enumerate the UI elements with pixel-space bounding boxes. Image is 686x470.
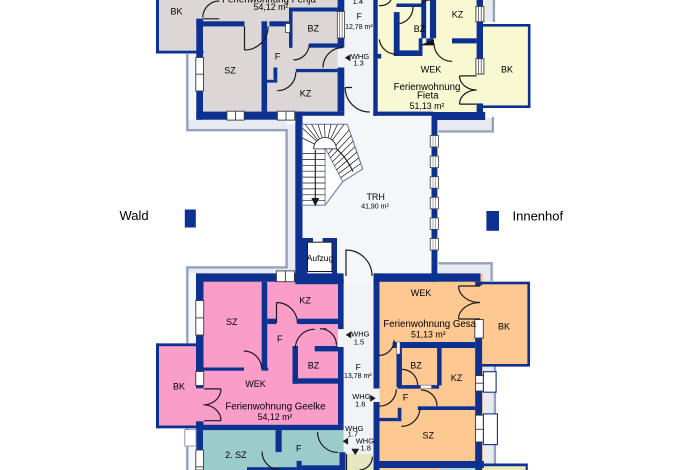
svg-text:1.3: 1.3 bbox=[353, 59, 363, 68]
svg-text:Innenhof: Innenhof bbox=[513, 208, 564, 223]
svg-text:54,12 m²: 54,12 m² bbox=[254, 2, 289, 12]
svg-text:F: F bbox=[277, 334, 283, 344]
svg-text:BZ: BZ bbox=[308, 24, 320, 34]
svg-text:KZ: KZ bbox=[300, 89, 312, 99]
svg-text:KZ: KZ bbox=[299, 295, 311, 305]
svg-text:SZ: SZ bbox=[423, 431, 435, 441]
svg-text:F: F bbox=[275, 52, 281, 62]
svg-text:BK: BK bbox=[498, 321, 510, 331]
svg-text:1.4: 1.4 bbox=[353, 0, 363, 6]
svg-text:BK: BK bbox=[170, 7, 182, 17]
svg-text:KZ: KZ bbox=[451, 373, 463, 383]
svg-text:KZ: KZ bbox=[452, 10, 464, 20]
svg-text:BK: BK bbox=[501, 65, 513, 75]
svg-text:SZ: SZ bbox=[226, 317, 238, 327]
svg-text:BK: BK bbox=[173, 381, 185, 391]
svg-text:12,78 m²: 12,78 m² bbox=[345, 24, 373, 31]
svg-text:Ferienwohnung Gesa: Ferienwohnung Gesa bbox=[383, 319, 476, 330]
svg-text:F: F bbox=[356, 362, 361, 372]
svg-text:WEK: WEK bbox=[411, 288, 432, 298]
svg-text:41,90 m²: 41,90 m² bbox=[361, 204, 389, 211]
svg-text:BZ: BZ bbox=[308, 361, 320, 371]
svg-text:13,78 m²: 13,78 m² bbox=[344, 373, 372, 380]
svg-text:1.5: 1.5 bbox=[354, 338, 364, 347]
svg-text:1.6: 1.6 bbox=[355, 399, 365, 408]
svg-text:SZ: SZ bbox=[224, 66, 236, 76]
svg-text:TRH: TRH bbox=[366, 192, 385, 202]
svg-text:WEK: WEK bbox=[245, 379, 266, 389]
svg-text:BZ: BZ bbox=[410, 360, 422, 370]
svg-text:1.8: 1.8 bbox=[360, 444, 370, 453]
svg-text:F: F bbox=[357, 11, 362, 21]
svg-text:Aufzug: Aufzug bbox=[307, 253, 334, 263]
svg-text:F: F bbox=[403, 393, 409, 403]
svg-text:WEK: WEK bbox=[421, 65, 442, 75]
svg-text:Wald: Wald bbox=[120, 208, 149, 223]
svg-text:2. SZ: 2. SZ bbox=[225, 450, 247, 460]
svg-text:51,13 m²: 51,13 m² bbox=[411, 330, 446, 340]
svg-text:51,13 m²: 51,13 m² bbox=[410, 101, 445, 111]
svg-text:54,12 m²: 54,12 m² bbox=[258, 412, 293, 422]
svg-text:BZ: BZ bbox=[414, 24, 426, 34]
svg-text:Ferienwohnung Geelke: Ferienwohnung Geelke bbox=[225, 402, 325, 413]
svg-text:F: F bbox=[296, 443, 302, 453]
